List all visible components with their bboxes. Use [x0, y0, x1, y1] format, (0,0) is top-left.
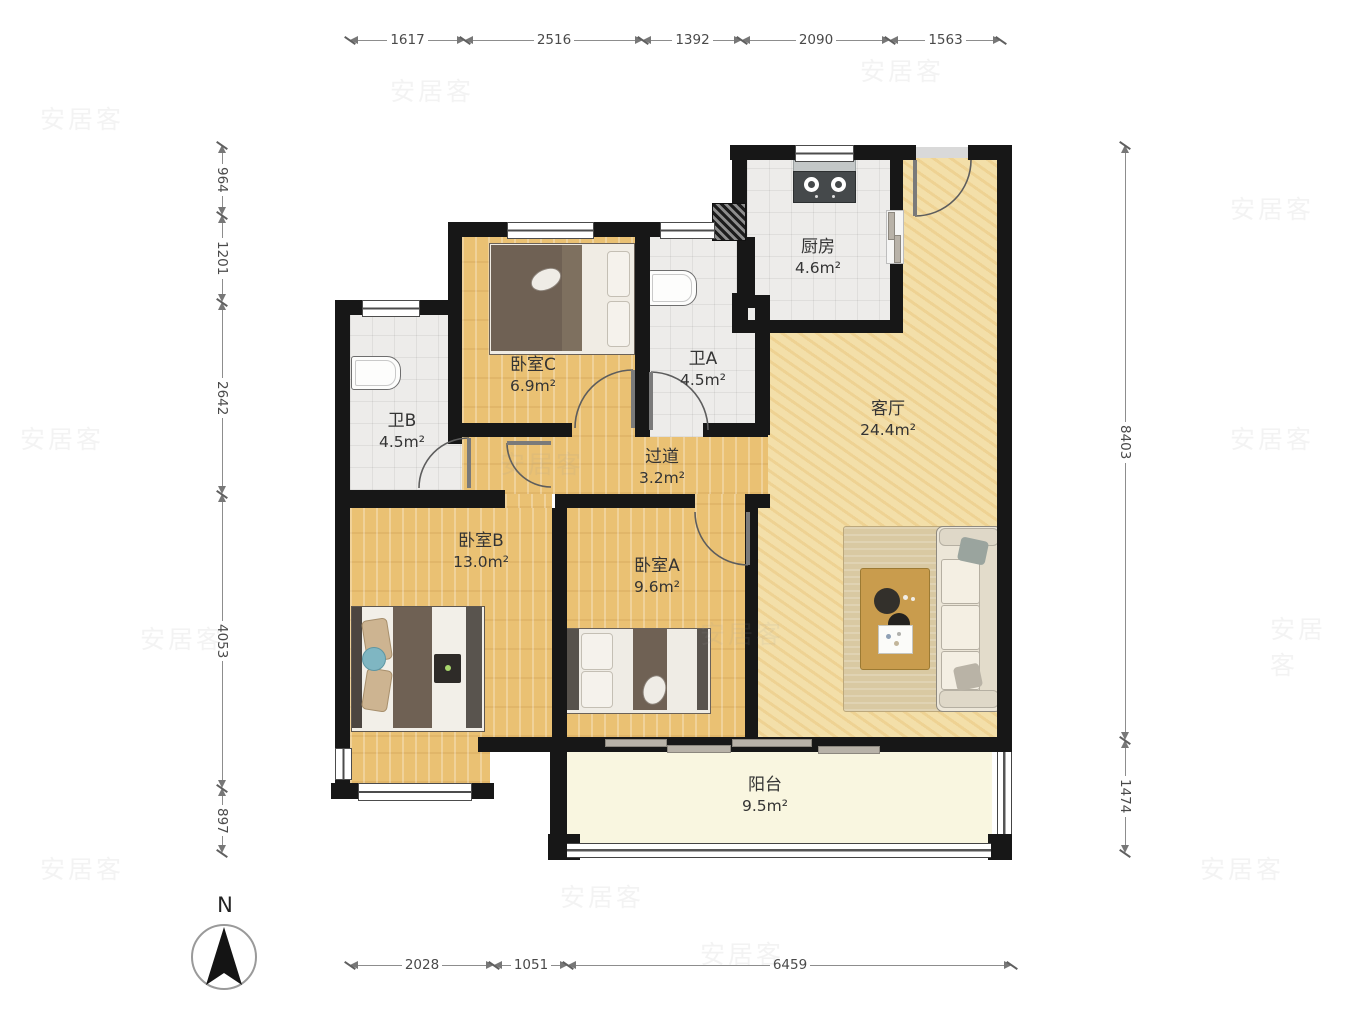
dimension-line: [222, 153, 223, 164]
dimension-line: [576, 965, 770, 966]
dimension-segment: 1563: [890, 31, 1001, 49]
dimension-label: 964: [214, 164, 230, 196]
dimension-line: [651, 40, 672, 41]
dimension-line: [222, 502, 223, 621]
dimension-line: [551, 965, 560, 966]
dimension-line: [810, 965, 1004, 966]
room-area: 24.4m²: [860, 420, 916, 440]
dimension-segment: 2642: [212, 302, 232, 494]
dimension-line: [574, 40, 635, 41]
dimension-line: [222, 310, 223, 378]
dimension-line: [358, 40, 387, 41]
dimension-segment: 1474: [1115, 740, 1135, 853]
dimension-line: [1125, 817, 1126, 845]
room-area: 3.2m²: [639, 468, 685, 488]
room-name: 过道: [639, 446, 685, 468]
dimension-label: 1617: [387, 32, 427, 48]
dimension-line: [1125, 153, 1126, 422]
dimension-line: [222, 279, 223, 294]
room-name: 卧室A: [634, 555, 680, 577]
dimension-segment: 8403: [1115, 145, 1135, 740]
room-label-kitchen: 厨房 4.6m²: [795, 236, 841, 278]
room-name: 卧室B: [453, 530, 509, 552]
door-arc: [507, 443, 551, 487]
room-name: 客厅: [860, 398, 916, 420]
dimension-line: [750, 40, 796, 41]
compass-icon: [184, 893, 266, 997]
dimension-label: 4053: [214, 621, 230, 661]
room-label-balcony: 阳台 9.5m²: [742, 774, 788, 816]
dimension-line: [222, 836, 223, 845]
dimension-line: [358, 965, 402, 966]
dimension-segment: 2090: [742, 31, 890, 49]
dimension-line: [428, 40, 457, 41]
dimension-segment: 1617: [350, 31, 465, 49]
floor-plan-page: 厨房 4.6m² 卫A 4.5m² 卧室C 6.9m² 卫B 4.5m² 客厅 …: [0, 0, 1350, 1012]
room-area: 13.0m²: [453, 552, 509, 572]
dimension-segment: 6459: [568, 956, 1012, 974]
dimension-line: [898, 40, 925, 41]
dimension-line: [473, 40, 534, 41]
dimension-segment: 2516: [465, 31, 643, 49]
door-arc: [915, 160, 971, 216]
dimension-line: [222, 196, 223, 207]
dimension-label: 1392: [672, 32, 712, 48]
dimension-line: [966, 40, 993, 41]
dimension-segment: 1201: [212, 215, 232, 302]
dimension-segment: 1051: [494, 956, 568, 974]
dimension-line: [1125, 748, 1126, 776]
room-label-living: 客厅 24.4m²: [860, 398, 916, 440]
room-name: 卫B: [379, 410, 425, 432]
dimension-line: [1125, 463, 1126, 732]
room-area: 6.9m²: [510, 376, 556, 396]
room-label-bedroom-a: 卧室A 9.6m²: [634, 555, 680, 597]
dimension-line: [502, 965, 511, 966]
room-area: 9.5m²: [742, 796, 788, 816]
dimension-line: [442, 965, 486, 966]
dimension-label: 2028: [402, 957, 442, 973]
door-arc: [419, 438, 469, 488]
door-swings: [0, 0, 1350, 1012]
dimension-label: 1051: [511, 957, 551, 973]
door-arc: [695, 512, 748, 565]
dimension-line: [222, 796, 223, 805]
room-label-bedroom-b: 卧室B 13.0m²: [453, 530, 509, 572]
dimension-label: 8403: [1117, 422, 1133, 462]
dimension-line: [222, 661, 223, 780]
room-label-bath-b: 卫B 4.5m²: [379, 410, 425, 452]
dimension-label: 2090: [796, 32, 836, 48]
dimension-line: [222, 418, 223, 486]
dimension-line: [713, 40, 734, 41]
room-area: 4.6m²: [795, 258, 841, 278]
room-label-bath-a: 卫A 4.5m²: [680, 348, 726, 390]
dimension-line: [222, 223, 223, 238]
dimension-label: 1563: [925, 32, 965, 48]
door-arc: [575, 370, 633, 428]
dimension-line: [836, 40, 882, 41]
dimension-label: 897: [214, 805, 230, 837]
dimension-segment: 1392: [643, 31, 742, 49]
dimension-segment: 964: [212, 145, 232, 215]
room-label-hallway: 过道 3.2m²: [639, 446, 685, 488]
room-area: 4.5m²: [680, 370, 726, 390]
room-name: 卫A: [680, 348, 726, 370]
room-area: 9.6m²: [634, 577, 680, 597]
room-name: 卧室C: [510, 354, 556, 376]
dimension-label: 6459: [770, 957, 810, 973]
room-name: 厨房: [795, 236, 841, 258]
room-area: 4.5m²: [379, 432, 425, 452]
dimension-label: 2642: [214, 378, 230, 418]
dimension-segment: 4053: [212, 494, 232, 788]
room-name: 阳台: [742, 774, 788, 796]
dimension-label: 2516: [534, 32, 574, 48]
dimension-segment: 897: [212, 788, 232, 853]
dimension-label: 1201: [214, 238, 230, 278]
dimension-segment: 2028: [350, 956, 494, 974]
compass: N: [184, 893, 266, 997]
dimension-label: 1474: [1117, 776, 1133, 816]
room-label-bedroom-c: 卧室C 6.9m²: [510, 354, 556, 396]
